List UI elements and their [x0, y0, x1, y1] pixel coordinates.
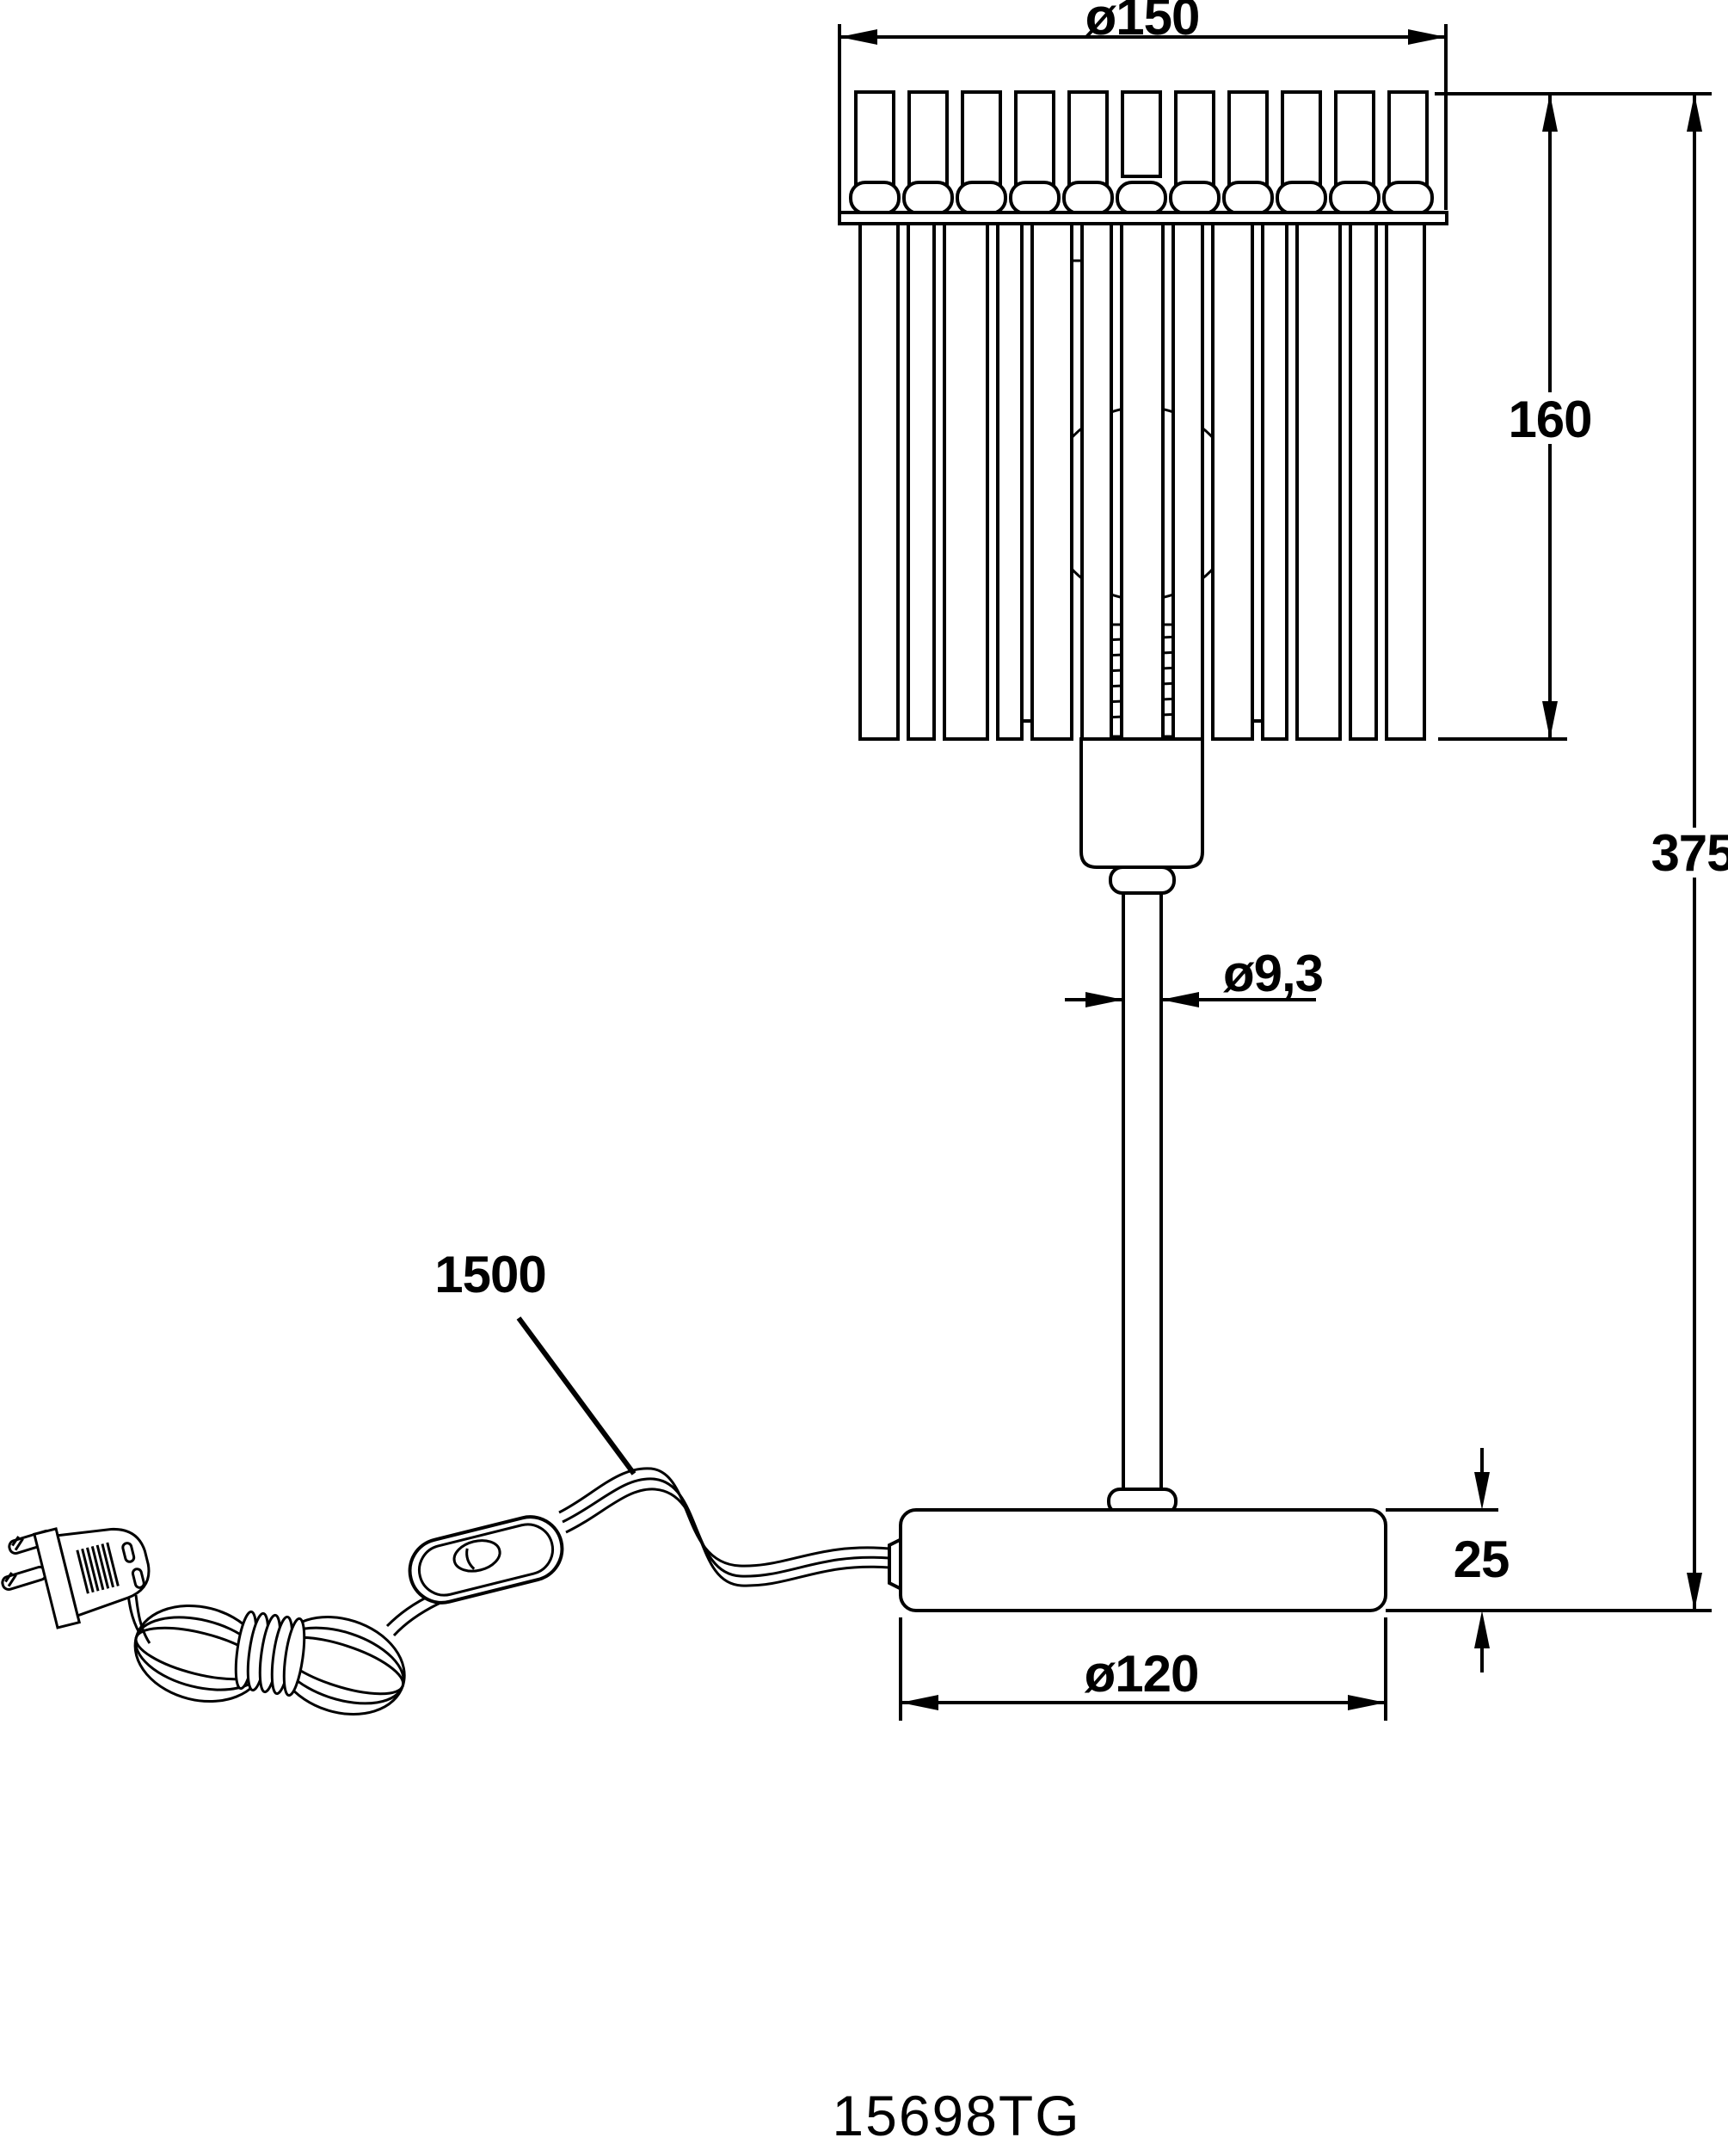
dim-label-shade-height: 160	[1508, 391, 1591, 448]
lamp-stem	[1123, 893, 1161, 1493]
dim-label-stem-diameter: ø9,3	[1223, 945, 1323, 1002]
dim-label-shade-diameter: ø150	[1085, 0, 1200, 46]
lamp-dimension-drawing: ø150 160 375 ø9,3 1500 25	[0, 0, 1728, 2156]
dim-label-base-height: 25	[1454, 1531, 1510, 1588]
cord-switch[interactable]	[403, 1510, 569, 1609]
part-number: 15698TG	[832, 2084, 1080, 2147]
lamp-shade	[839, 92, 1447, 739]
bulb-socket	[1081, 739, 1202, 893]
dim-total-height: 375	[1386, 94, 1728, 1611]
crown-rod-caps	[851, 182, 1432, 213]
technical-drawing-page: ø150 160 375 ø9,3 1500 25	[0, 0, 1728, 2156]
lamp-base	[889, 1489, 1386, 1611]
dim-label-cable-length: 1500	[434, 1246, 545, 1303]
power-plug	[1, 1509, 157, 1628]
dim-cable-length: 1500	[434, 1246, 634, 1474]
dim-base-height: 25	[1386, 1448, 1509, 1672]
shade-slats	[860, 223, 1424, 739]
cord-wraps	[232, 1611, 308, 1697]
dim-base-diameter: ø120	[901, 1617, 1386, 1721]
shade-crown-rods	[851, 92, 1432, 213]
coiled-cord	[125, 1588, 417, 1730]
dim-label-total-height: 375	[1651, 824, 1728, 882]
dim-shade-height: 160	[1435, 94, 1712, 739]
dim-label-base-diameter: ø120	[1085, 1645, 1199, 1703]
dim-stem-diameter: ø9,3	[1065, 945, 1323, 1007]
shade-ring	[839, 213, 1447, 224]
